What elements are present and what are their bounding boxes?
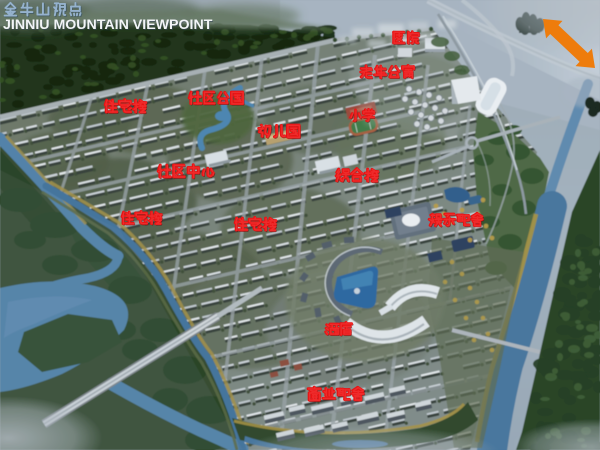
svg-text:JINNIU MOUNTAIN VIEWPOINT: JINNIU MOUNTAIN VIEWPOINT <box>3 17 213 33</box>
